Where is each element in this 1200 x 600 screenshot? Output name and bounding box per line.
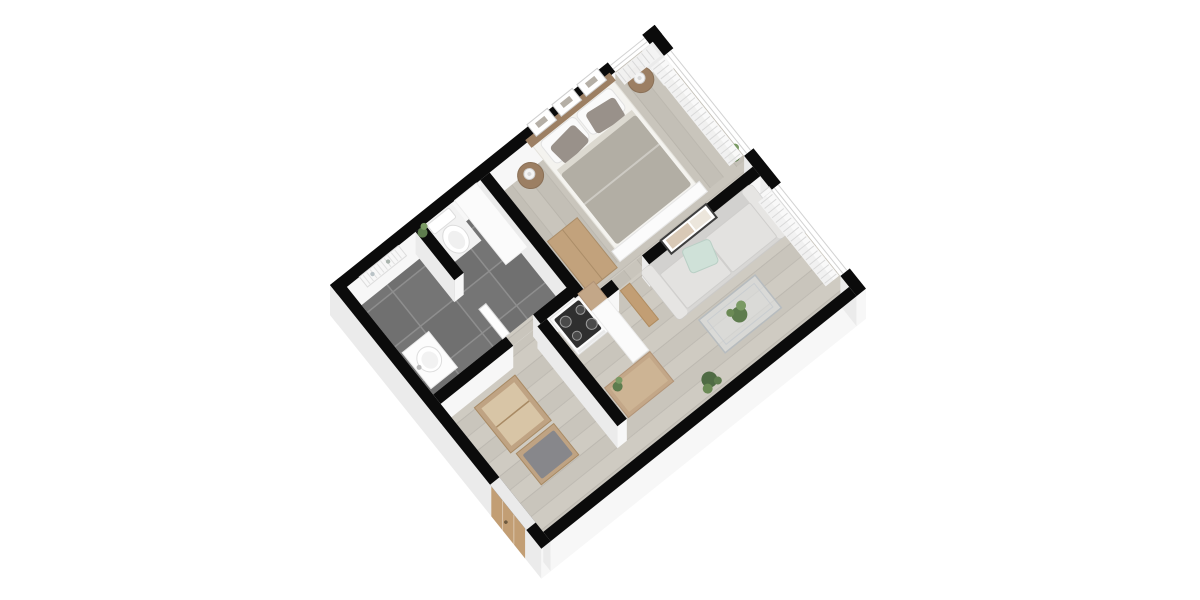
floor-plan-canvas: 3D isometric floor plan render of a one-…	[0, 0, 1200, 600]
floor-plan-svg: 3D isometric floor plan render of a one-…	[0, 0, 1200, 600]
